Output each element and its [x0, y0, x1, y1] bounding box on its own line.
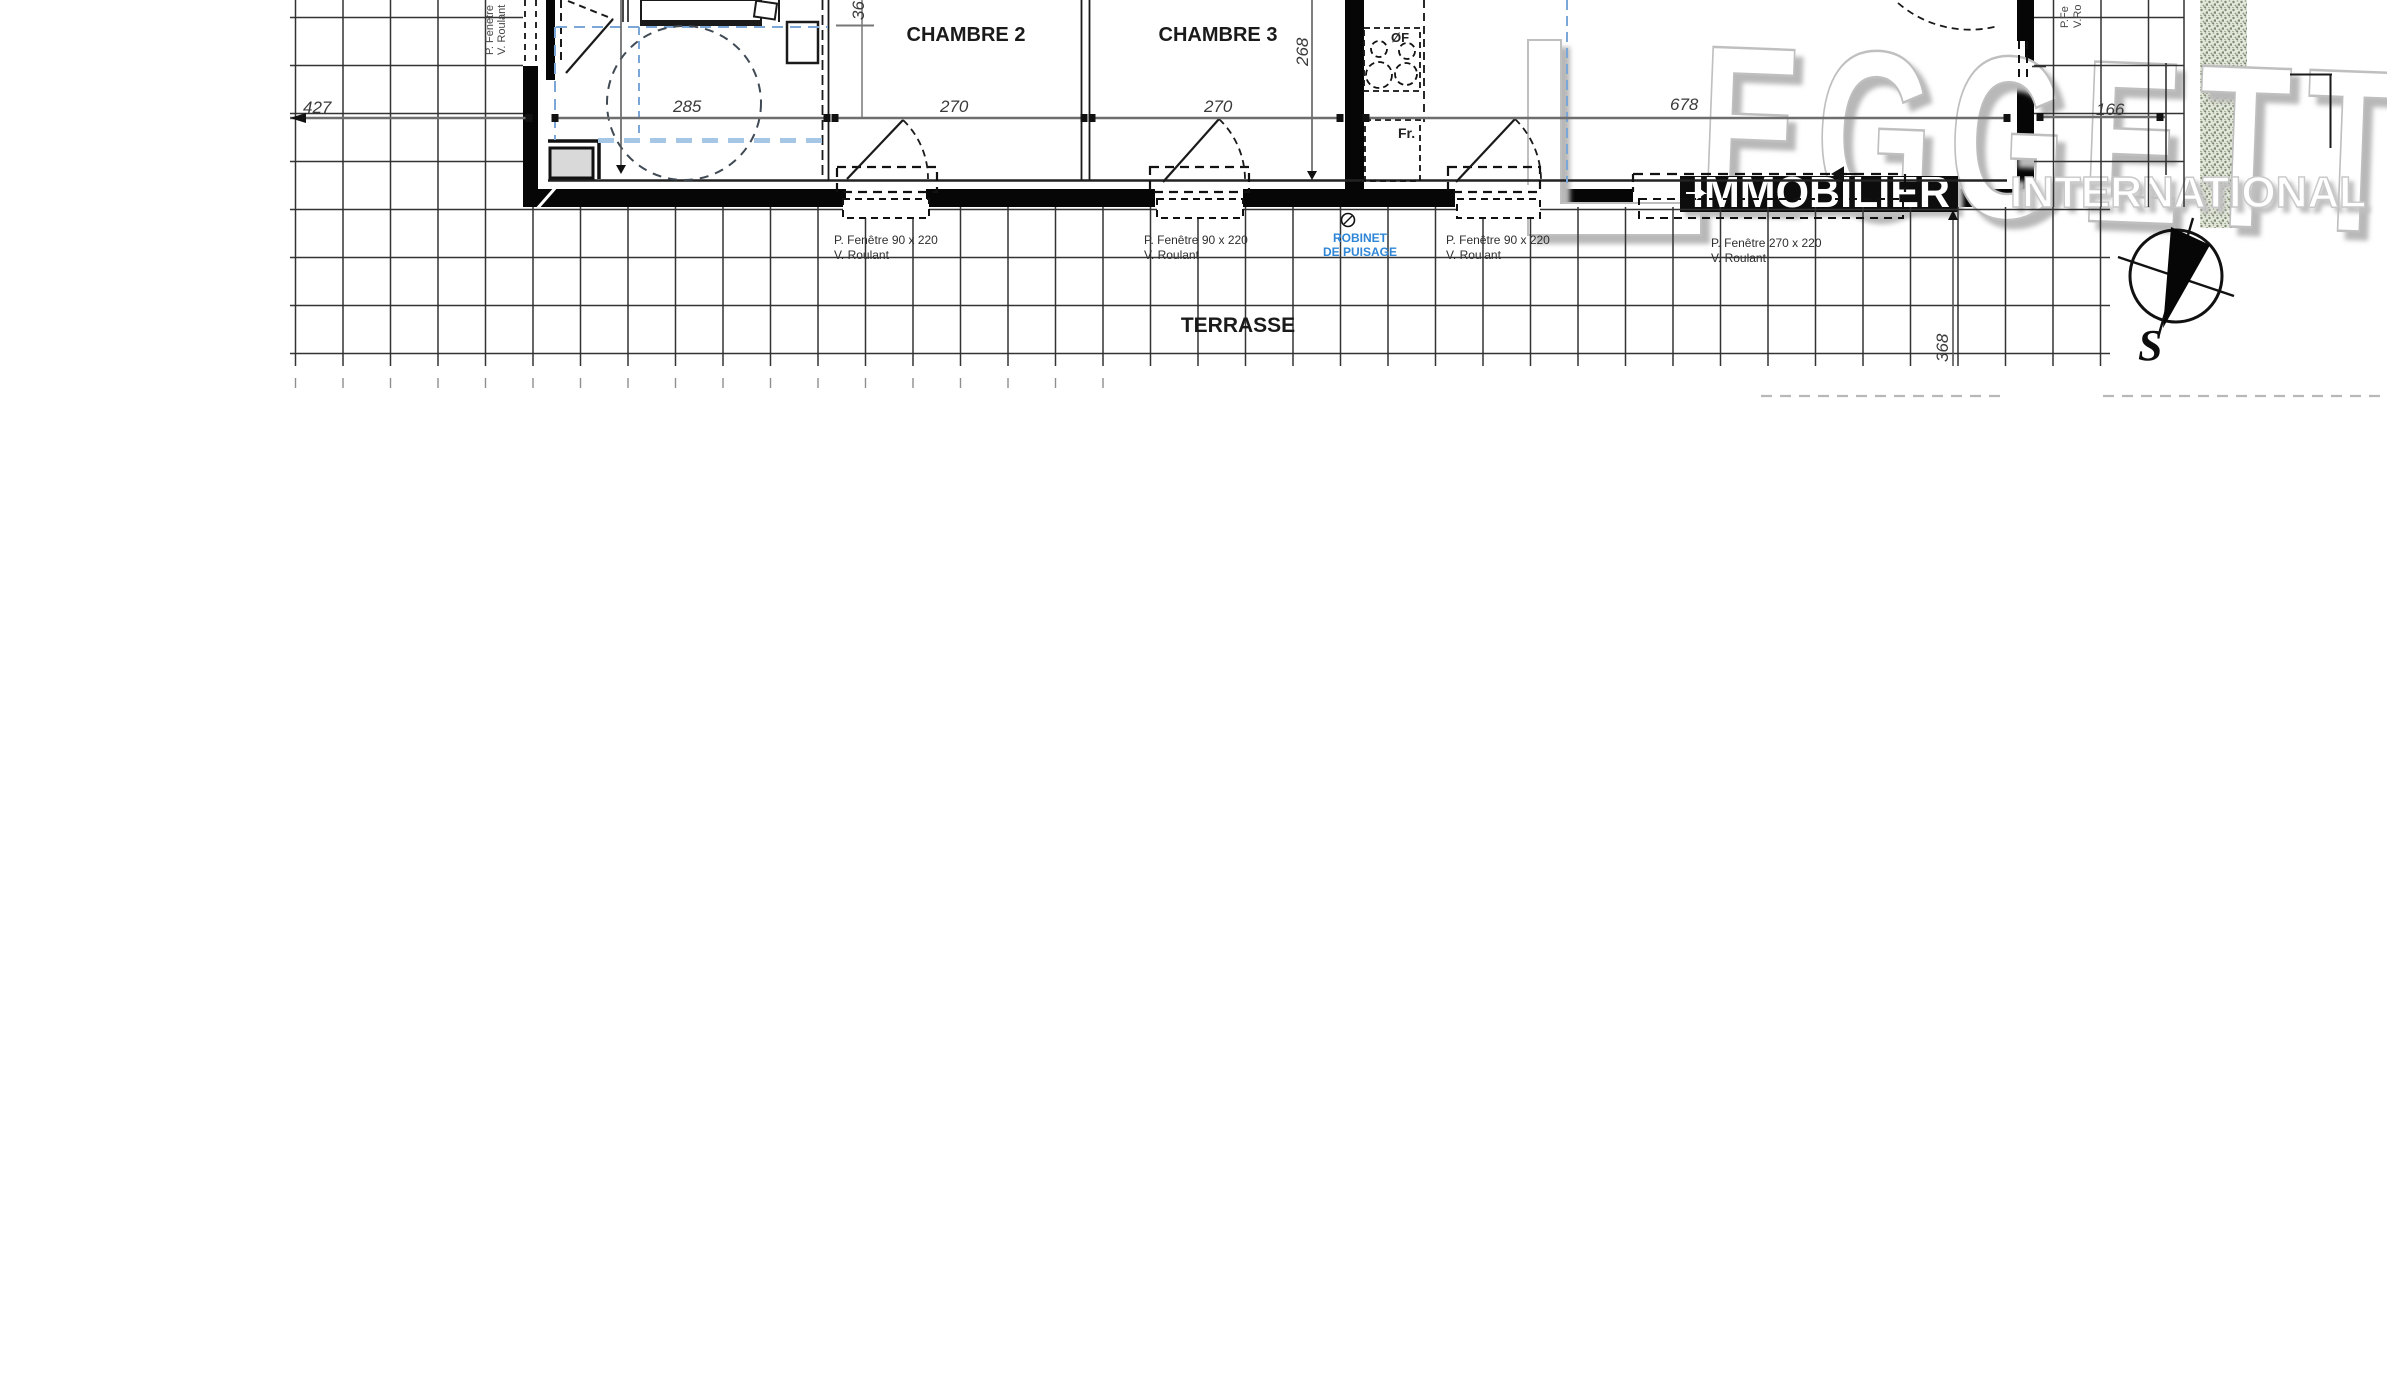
svg-text:270: 270 [939, 97, 969, 116]
svg-text:678: 678 [1670, 95, 1699, 114]
svg-text:268: 268 [1293, 37, 1312, 67]
svg-text:P. Fenêtre 90 x 220: P. Fenêtre 90 x 220 [834, 233, 938, 247]
svg-text:V. Roulant: V. Roulant [1144, 248, 1200, 262]
svg-text:P. Fenêtre 90 x 220: P. Fenêtre 90 x 220 [1144, 233, 1248, 247]
svg-text:V. Roulant: V. Roulant [1446, 248, 1502, 262]
svg-text:V.Ro: V.Ro [2072, 5, 2084, 28]
svg-text:P. Fenêtre 90 x 220: P. Fenêtre 90 x 220 [1446, 233, 1550, 247]
svg-text:CHAMBRE 2: CHAMBRE 2 [907, 24, 1026, 46]
svg-text:CHAMBRE 3: CHAMBRE 3 [1159, 24, 1278, 46]
svg-text:P. Fenêtre 270 x 220: P. Fenêtre 270 x 220 [1711, 236, 1822, 250]
svg-text:V. Roulant: V. Roulant [1711, 251, 1767, 265]
svg-text:S: S [2138, 321, 2162, 370]
svg-text:V. Roulant: V. Roulant [834, 248, 890, 262]
svg-text:DE PUISAGE: DE PUISAGE [1323, 245, 1397, 259]
svg-text:Fr.: Fr. [1398, 125, 1415, 141]
svg-text:270: 270 [1203, 97, 1233, 116]
svg-text:V. Roulant: V. Roulant [496, 5, 508, 55]
svg-text:ROBINET: ROBINET [1333, 231, 1388, 245]
svg-text:368: 368 [1933, 333, 1952, 362]
svg-text:TERRASSE: TERRASSE [1181, 314, 1295, 337]
svg-text:P. Fenêtre: P. Fenêtre [484, 5, 496, 55]
svg-text:36: 36 [849, 1, 868, 20]
svg-text:ØF: ØF [1391, 30, 1409, 45]
svg-text:P.Fe: P.Fe [2059, 6, 2071, 28]
svg-text:166: 166 [2096, 100, 2125, 119]
svg-text:427: 427 [303, 98, 332, 117]
svg-text:285: 285 [672, 97, 702, 116]
